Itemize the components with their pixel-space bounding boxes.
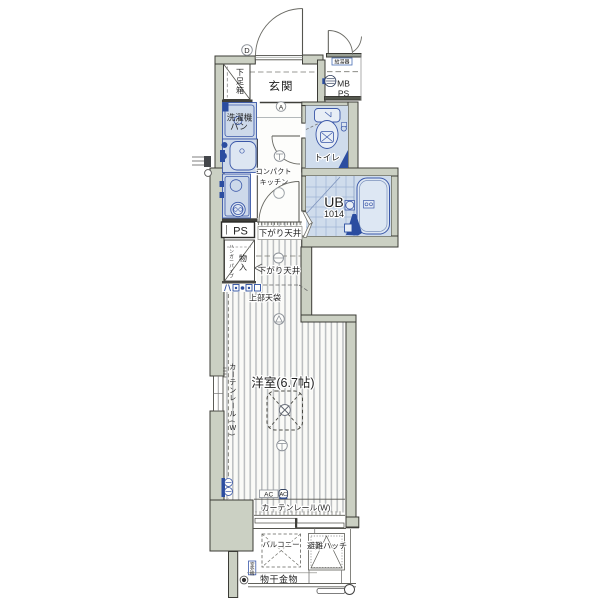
svg-text:PS: PS (233, 226, 248, 238)
svg-text:パン: パン (230, 122, 247, 132)
svg-text:給湯器: 給湯器 (334, 59, 349, 66)
svg-text:ー: ー (228, 371, 235, 378)
svg-text:カーテンレール(W): カーテンレール(W) (262, 504, 331, 513)
svg-text:W: W (229, 425, 236, 432)
svg-text:避難ハッチ: 避難ハッチ (307, 541, 347, 551)
svg-text:ル: ル (229, 411, 236, 418)
svg-text:下: 下 (236, 68, 244, 77)
svg-text:玄関: 玄関 (269, 79, 294, 93)
svg-text:PS: PS (338, 88, 350, 98)
svg-text:1014: 1014 (324, 209, 344, 219)
svg-text:AC: AC (279, 492, 287, 498)
svg-text:上部天袋: 上部天袋 (249, 293, 281, 303)
svg-text:機: 機 (250, 570, 255, 577)
svg-text:D: D (244, 46, 250, 55)
svg-text:): ) (229, 434, 236, 436)
svg-text:入: 入 (239, 263, 247, 272)
svg-text:物: 物 (239, 253, 247, 263)
svg-text:バルコニー: バルコニー (262, 540, 299, 549)
svg-text:AC: AC (264, 491, 273, 498)
svg-text:下がり天井: 下がり天井 (259, 228, 302, 238)
svg-text:箱: 箱 (236, 85, 244, 95)
svg-text:キッチン: キッチン (260, 178, 289, 187)
svg-text:物干金物: 物干金物 (260, 574, 298, 585)
svg-text:足: 足 (236, 77, 244, 86)
svg-text:A: A (279, 104, 284, 111)
svg-text:UB: UB (324, 194, 343, 210)
svg-text:コンパクト: コンパクト (256, 167, 292, 176)
svg-text:洋室(6.7帖): 洋室(6.7帖) (251, 375, 314, 390)
svg-text:MB: MB (337, 79, 350, 89)
svg-text:テ: テ (229, 379, 236, 387)
svg-text:カ: カ (229, 363, 236, 371)
svg-text:ー: ー (228, 402, 235, 409)
svg-text:ン: ン (229, 387, 236, 394)
svg-text:トイレ: トイレ (314, 153, 340, 163)
svg-text:下がり天井: 下がり天井 (258, 266, 301, 276)
